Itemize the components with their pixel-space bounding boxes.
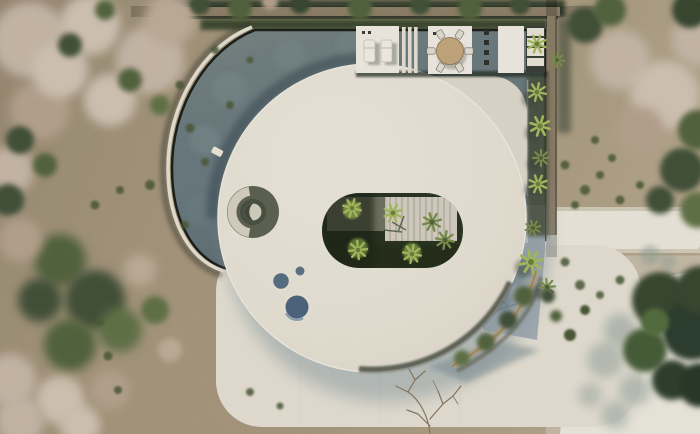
aerial-villa-render [0, 0, 700, 434]
film-grain-overlay [0, 0, 700, 434]
